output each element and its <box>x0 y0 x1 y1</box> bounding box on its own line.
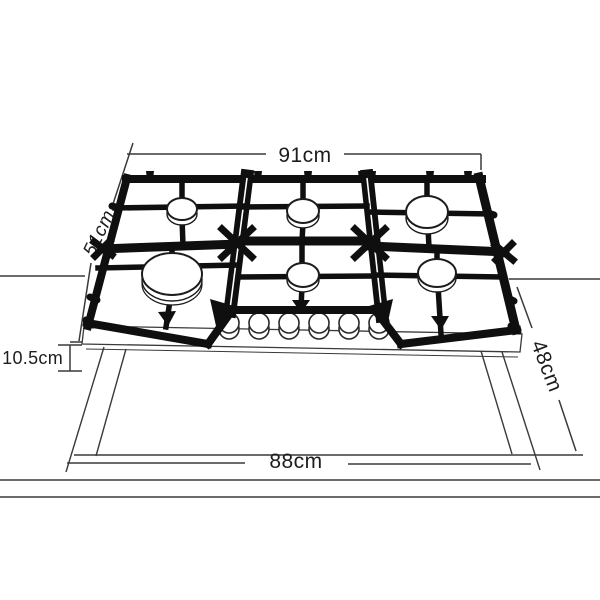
dim-cutout-width: 88cm <box>67 450 531 473</box>
cutout-left-edge-outer <box>66 347 104 472</box>
dim-line-lower <box>559 400 576 451</box>
dim-body-height: 10.5cm <box>2 345 82 371</box>
knob-2 <box>249 313 269 339</box>
knob-3 <box>279 313 299 339</box>
burner-top-middle <box>287 199 319 228</box>
diagram-svg: 91cm 51cm 10.5cm 48cm 88cm <box>0 0 600 600</box>
cooktop-dimension-diagram: 91cm 51cm 10.5cm 48cm 88cm <box>0 0 600 600</box>
dim-line-upper <box>517 287 532 328</box>
knob-4 <box>309 313 329 339</box>
burner-top-right <box>406 196 448 234</box>
cutout-left-edge-inner <box>96 349 126 456</box>
cutout-right-edge-inner <box>502 352 540 470</box>
dim-cooktop-width: 91cm <box>127 144 481 174</box>
burner-top-left <box>167 198 197 225</box>
knob-5 <box>339 313 359 339</box>
burner-bottom-middle <box>287 263 319 292</box>
cooktop-width-label: 91cm <box>278 144 331 167</box>
cutout-width-label: 88cm <box>269 450 322 473</box>
cooktop <box>82 170 522 357</box>
cutout-depth-label: 48cm <box>526 337 567 395</box>
burner-bottom-left <box>142 253 202 305</box>
burner-bottom-right <box>418 259 456 292</box>
body-height-label: 10.5cm <box>2 348 63 368</box>
cutout-outline <box>66 347 583 472</box>
